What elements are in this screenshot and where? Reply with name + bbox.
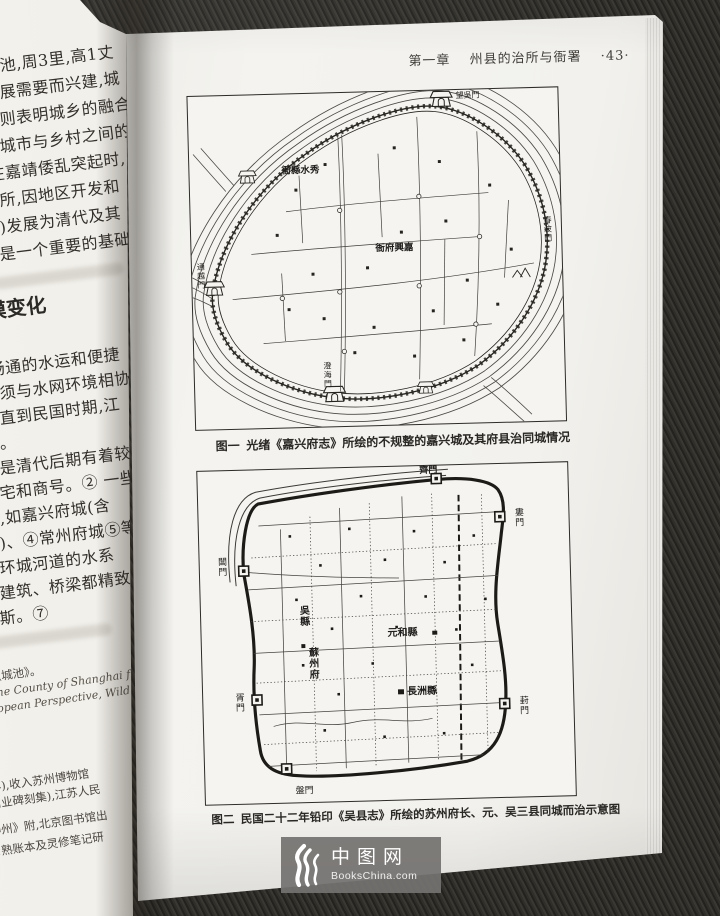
label-yuanhe-county: 元和縣 — [387, 628, 417, 639]
label-gate-loumen: 婁門 — [512, 507, 522, 527]
page-number: ·43· — [601, 48, 630, 64]
jiaxing-map-drawing — [187, 87, 566, 430]
label-xiushui-county-yamen: 衙縣水秀 — [281, 166, 319, 177]
label-changzhou-county: 長洲縣 — [407, 687, 437, 698]
city-wall — [241, 477, 510, 778]
figure1-jiaxing-map: 衙縣水秀 衙府興嘉 望吳門 通越門 春波門 澄海門 — [186, 86, 567, 431]
label-wu-county: 吳縣 — [297, 605, 308, 627]
county-boundary-line — [455, 495, 466, 761]
moat-rings — [187, 87, 566, 430]
figure1-tag: 图一 — [215, 439, 239, 454]
bleed-through — [0, 262, 124, 290]
label-gate-tongyue: 通越門 — [196, 263, 205, 290]
watermark-brand: 中图网 — [331, 848, 417, 867]
figure2-suzhou-map: 齊門 婁門 葑門 盤門 胥門 閶門 吳縣 蘇州府 元和縣 長洲縣 — [196, 461, 577, 806]
label-jiaxing-fu-yamen: 衙府興嘉 — [375, 243, 413, 254]
page-stack-edge — [645, 18, 663, 858]
figure1-caption-text: 光绪《嘉兴府志》所绘的不规整的嘉兴城及其府县治同城情况 — [246, 430, 570, 452]
label-suzhou-fu: 蘇州府 — [306, 647, 317, 680]
label-gate-panmen: 盤門 — [296, 787, 314, 797]
flame-logo-icon — [291, 843, 325, 887]
label-gate-qimen: 齊門 — [419, 467, 437, 477]
moat-lines — [226, 469, 450, 586]
left-page-section-heading: 模变化 — [0, 288, 48, 324]
label-gate-chunbo: 春波門 — [543, 216, 552, 243]
label-gate-changmen: 閶門 — [216, 557, 226, 577]
street-lines — [228, 114, 537, 394]
label-gate-fengmen: 葑門 — [517, 695, 527, 715]
book-photo: 筑城池,周3里,高1丈 的发展需要而兴建,城 方面则表明城乡的融合 和大城市与乡… — [0, 0, 720, 916]
right-page-content: 第一章 州县的治所与衙署 ·43· — [147, 28, 650, 852]
hill-marks — [512, 268, 530, 277]
chapter-title: 州县的治所与衙署 — [469, 50, 581, 68]
label-gate-chenghai: 澄海門 — [322, 361, 331, 388]
figure1-caption: 图一 光绪《嘉兴府志》所绘的不规整的嘉兴城及其府县治同城情况 — [215, 428, 570, 454]
gate-icons — [236, 472, 511, 775]
chapter-label: 第一章 — [408, 53, 450, 69]
figure2-tag: 图二 — [211, 814, 234, 827]
figure2-caption-text: 民国二十二年铅印《吴县志》所绘的苏州府长、元、吴三县同城而治示意图 — [241, 804, 621, 826]
street-lines — [242, 492, 506, 773]
watermark-url: BooksChina.com — [331, 870, 417, 882]
label-gate-xumen: 胥門 — [233, 693, 243, 713]
bookschina-watermark: 中图网 BooksChina.com — [281, 837, 441, 893]
label-gate-wangwu: 望吳門 — [455, 91, 479, 100]
running-header: 第一章 州县的治所与衙署 ·43· — [147, 44, 629, 76]
